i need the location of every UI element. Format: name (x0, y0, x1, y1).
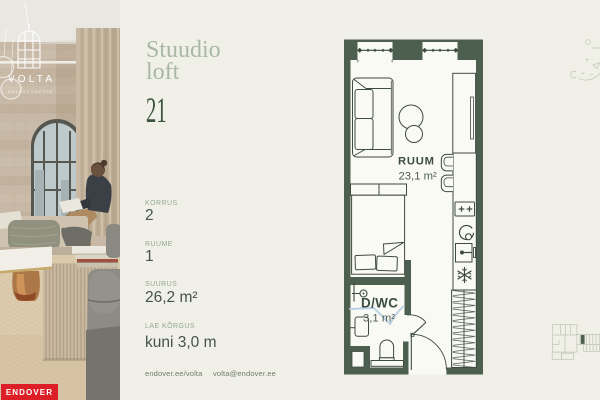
svg-text:23,1 m²: 23,1 m² (399, 171, 438, 183)
svg-text:RUUM: RUUM (398, 156, 435, 168)
svg-text:D/WC: D/WC (361, 296, 398, 311)
svg-text:3,1 m²: 3,1 m² (363, 313, 395, 325)
